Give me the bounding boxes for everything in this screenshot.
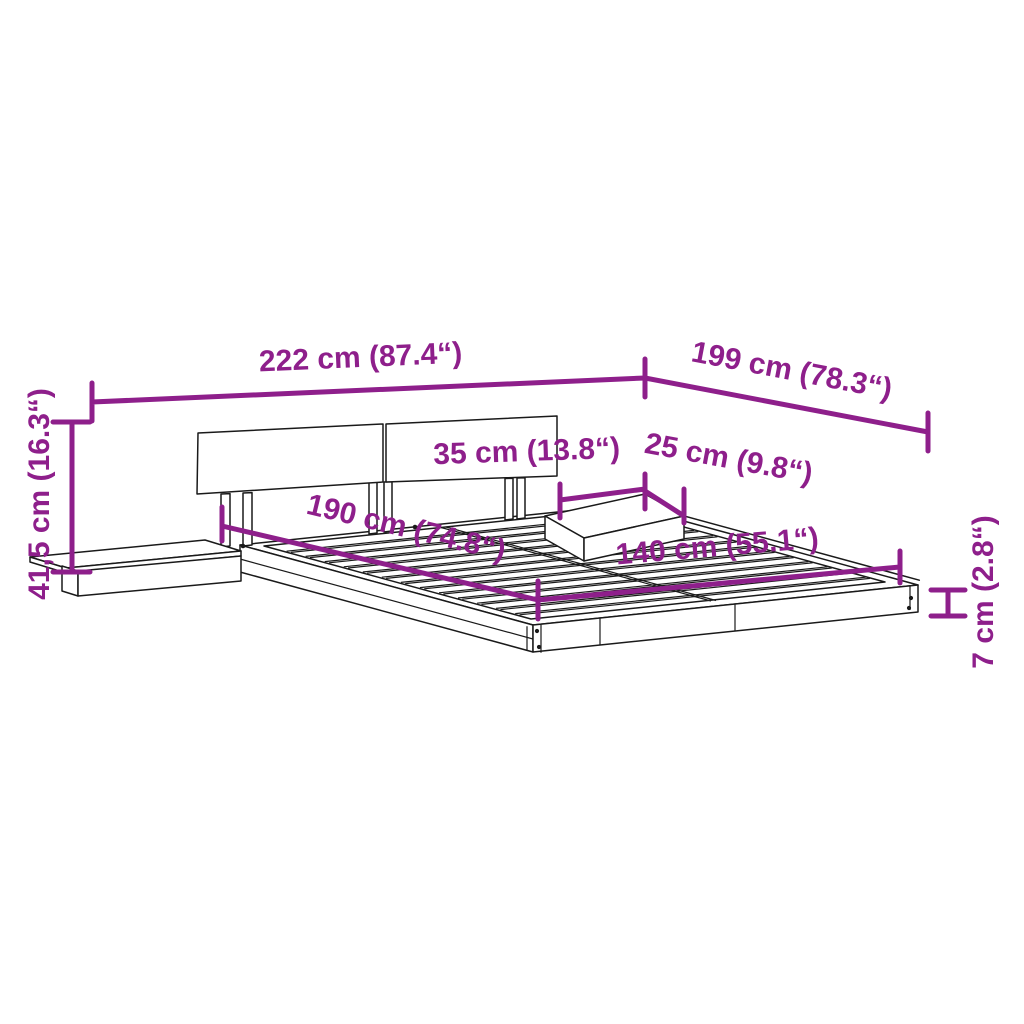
diagram-canvas: 222 cm (87.4“) 199 cm (78.3“) 41,5 cm (1…	[0, 0, 1024, 1024]
bed-frame-dimension-diagram: 222 cm (87.4“) 199 cm (78.3“) 41,5 cm (1…	[0, 0, 1024, 1024]
headboard-post	[517, 478, 525, 519]
dim-label-total-height: 41,5 cm (16.3“)	[23, 388, 56, 600]
headboard-post	[505, 478, 513, 520]
dimension-nightstand-depth: 25 cm (9.8“)	[642, 427, 815, 523]
dim-label-nightstand-width: 35 cm (13.8“)	[433, 432, 621, 471]
left-nightstand	[30, 540, 241, 596]
headboard-post	[243, 493, 252, 546]
dim-line-frame-height	[931, 590, 965, 616]
dim-label-total-depth: 199 cm (78.3“)	[689, 335, 895, 406]
dimension-frame-height: 7 cm (2.8“)	[931, 515, 1000, 668]
dim-line-total-height	[53, 422, 90, 572]
headboard-panel-left	[197, 424, 383, 494]
dim-label-nightstand-depth: 25 cm (9.8“)	[642, 427, 815, 490]
dim-label-total-width: 222 cm (87.4“)	[258, 337, 463, 379]
dimension-total-width: 222 cm (87.4“)	[92, 337, 645, 421]
dim-label-frame-height: 7 cm (2.8“)	[967, 515, 1000, 668]
